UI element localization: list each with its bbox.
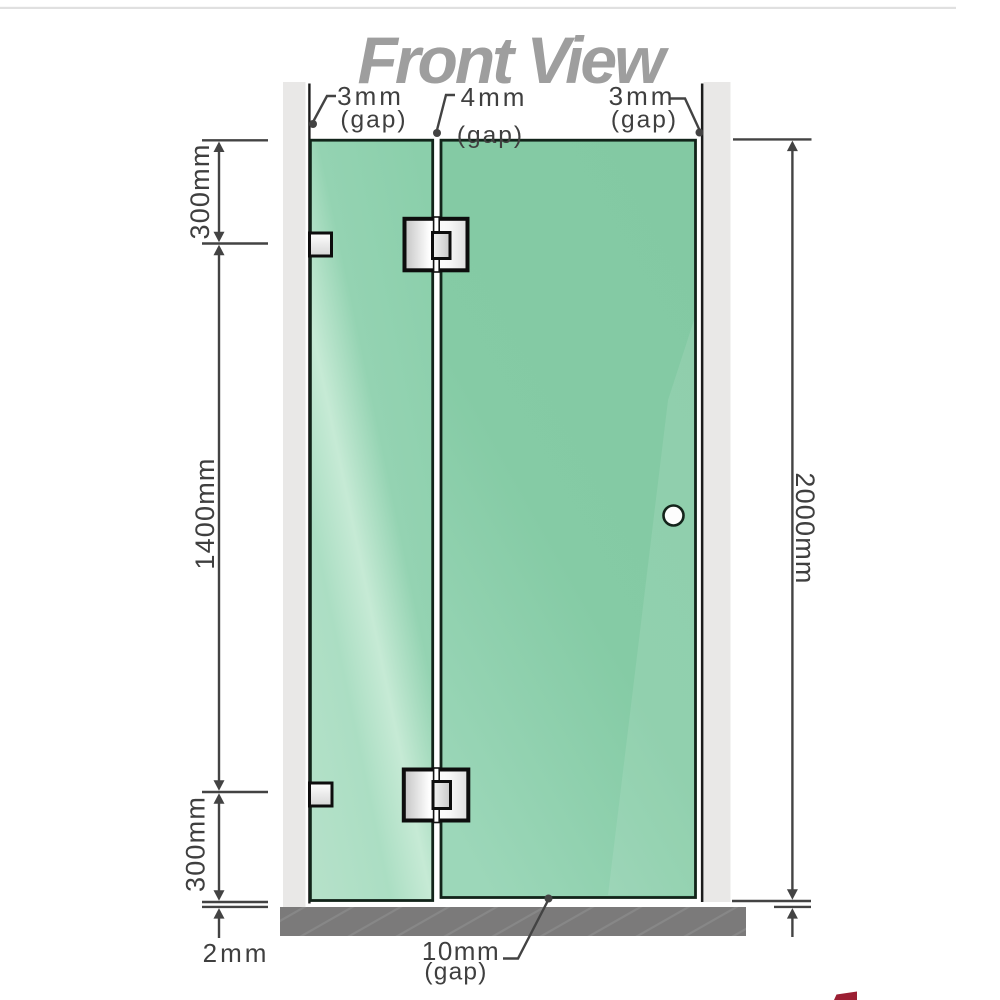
- svg-text:2mm: 2mm: [203, 938, 270, 968]
- svg-text:(gap): (gap): [611, 107, 678, 134]
- svg-text:(gap): (gap): [457, 122, 524, 149]
- svg-text:(gap): (gap): [424, 959, 487, 986]
- svg-text:(gap): (gap): [340, 107, 407, 134]
- svg-text:4mm: 4mm: [461, 82, 528, 112]
- svg-text:300mm: 300mm: [185, 143, 215, 239]
- svg-text:1400mm: 1400mm: [190, 457, 220, 569]
- svg-text:2000mm: 2000mm: [790, 472, 820, 584]
- svg-text:300mm: 300mm: [181, 796, 211, 892]
